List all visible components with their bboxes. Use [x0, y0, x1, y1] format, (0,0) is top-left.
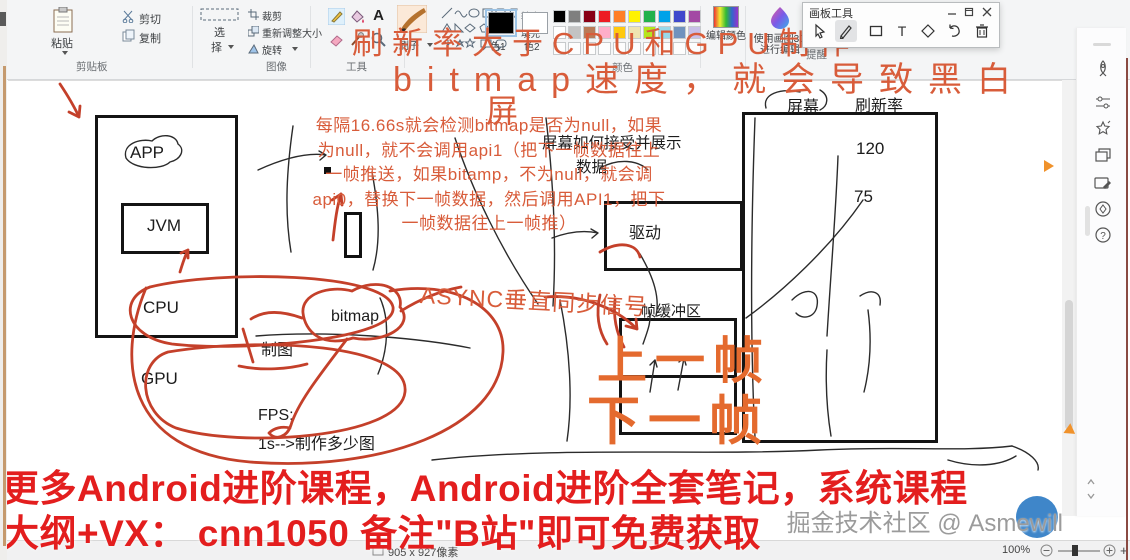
annotation-paragraph-line: 一帧推送，如果bitamp，不为null，就会调 [290, 163, 688, 188]
annotation-paragraph-line: 一帧数据往上一帧推） [290, 212, 688, 237]
paste-dropdown-icon [62, 51, 68, 55]
gpu-label: GPU [141, 369, 178, 389]
left-edge-strip [0, 0, 7, 560]
help-icon[interactable]: ? [1094, 226, 1112, 244]
screen-box [742, 112, 938, 443]
clipped-window-fragment [0, 12, 6, 26]
eraser-tool[interactable] [328, 31, 345, 53]
rotate-button[interactable]: 旋转 [248, 41, 318, 56]
side-toolbar: ? [1076, 28, 1126, 516]
annotation-paragraph: 每隔16.66s就会检测bitmap是否为null，如果为null，就不会调用a… [290, 114, 688, 237]
zoom-slider-thumb[interactable] [1072, 545, 1078, 556]
select-label-1: 选 [214, 24, 225, 40]
multi-window-icon[interactable] [1094, 147, 1112, 165]
pencil-icon [328, 8, 345, 25]
resize-label: 重新调整大小 [262, 25, 322, 40]
right-edge-line [1126, 58, 1128, 560]
resize-icon [248, 26, 259, 37]
select-button[interactable]: 选 择 [200, 8, 246, 58]
paint-window: 粘贴 剪切 复制 剪贴板 选 择 裁剪 重新调整大小 旋转 [0, 0, 1130, 560]
pointer-cursor [1044, 160, 1054, 172]
panel-minimize-button[interactable] [945, 6, 959, 18]
panel-undo-button[interactable] [943, 20, 965, 42]
rate-120: 120 [856, 139, 884, 159]
canvas-vertical-scrollbar[interactable] [1062, 80, 1076, 516]
cpu-label: CPU [143, 298, 179, 318]
rate-75: 75 [854, 187, 873, 207]
annotation-paragraph-line: 为null，就不会调用api1（把下一帧数据往上 [290, 139, 688, 164]
copy-icon [122, 29, 135, 42]
draw-label: 制图 [261, 336, 293, 360]
panel-close-button[interactable] [980, 6, 994, 18]
eraser-icon [328, 31, 345, 48]
rotate-icon [248, 43, 259, 54]
sidebar-scroll-thumb[interactable] [1085, 206, 1090, 236]
crop-label: 裁剪 [262, 8, 282, 23]
panel-eraser-tool[interactable] [917, 20, 939, 42]
fps-label: FPS: [258, 407, 294, 425]
rotate-label: 旋转 [262, 42, 282, 57]
clipboard-group-label: 剪贴板 [76, 59, 108, 74]
select-rect-icon [200, 8, 240, 22]
app-label: APP [130, 143, 164, 163]
jvm-label: JVM [147, 216, 181, 236]
pencil-tool[interactable] [328, 8, 345, 30]
zoom-in-button[interactable] [1103, 544, 1116, 557]
select-dropdown-icon [228, 45, 234, 49]
panel-text-tool-icon: T [898, 23, 907, 39]
settings-sliders-icon[interactable] [1094, 94, 1112, 112]
zoom-level-text: 100% [1002, 544, 1030, 556]
panel-cursor-tool[interactable] [809, 20, 831, 42]
zoom-out-button[interactable] [1040, 544, 1053, 557]
scrollbar-thumb[interactable] [1065, 300, 1073, 430]
annotation-paragraph-line: 每隔16.66s就会检测bitmap是否为null，如果 [290, 114, 688, 139]
next-frame-label: 下一帧 [587, 379, 770, 455]
rotate-dropdown-icon [292, 47, 298, 51]
annotate-card-icon[interactable] [1094, 174, 1112, 192]
promo-line2: 大纲+VX： cnn1050 备注"B站"即可免费获取 [2, 503, 761, 557]
annotation-paragraph-line: api0，替换下一帧数据，然后调用API1，把下 [290, 188, 688, 213]
panel-delete-button[interactable] [971, 20, 993, 42]
location-badge-icon[interactable] [1094, 200, 1112, 218]
copy-label: 复制 [139, 30, 161, 46]
bitmap-label: bitmap [331, 308, 379, 326]
rocket-icon[interactable] [1094, 60, 1112, 78]
clipboard-icon [52, 7, 74, 34]
panel-title: 画板工具 [809, 5, 853, 21]
copy-button[interactable]: 复制 [122, 29, 178, 44]
image-group-label: 图像 [266, 59, 287, 74]
drag-handle-icon[interactable] [1093, 43, 1111, 46]
fps-desc: 1s-->制作多少图 [258, 430, 375, 454]
cut-label: 剪切 [139, 11, 161, 27]
crop-icon [248, 9, 259, 20]
panel-maximize-button[interactable] [962, 6, 976, 18]
sidebar-scroll-arrows[interactable] [1086, 476, 1096, 504]
board-tools-panel: 画板工具 T [802, 2, 1000, 48]
clipped-window-edge [3, 66, 6, 546]
effects-star-icon[interactable] [1094, 120, 1112, 138]
paste-label: 粘贴 [51, 35, 73, 51]
panel-text-tool[interactable]: T [891, 20, 913, 42]
frame-buffer-label: 帧缓冲区 [641, 300, 701, 321]
zoom-slider-track[interactable] [1058, 550, 1100, 552]
help-glyph: ? [1100, 231, 1106, 242]
panel-pen-tool[interactable] [835, 20, 857, 42]
cut-button[interactable]: 剪切 [122, 10, 178, 25]
paste-button[interactable]: 粘贴 [44, 5, 82, 57]
panel-rect-tool[interactable] [865, 20, 887, 42]
select-label-2: 择 [211, 39, 222, 55]
scissors-icon [122, 10, 135, 23]
